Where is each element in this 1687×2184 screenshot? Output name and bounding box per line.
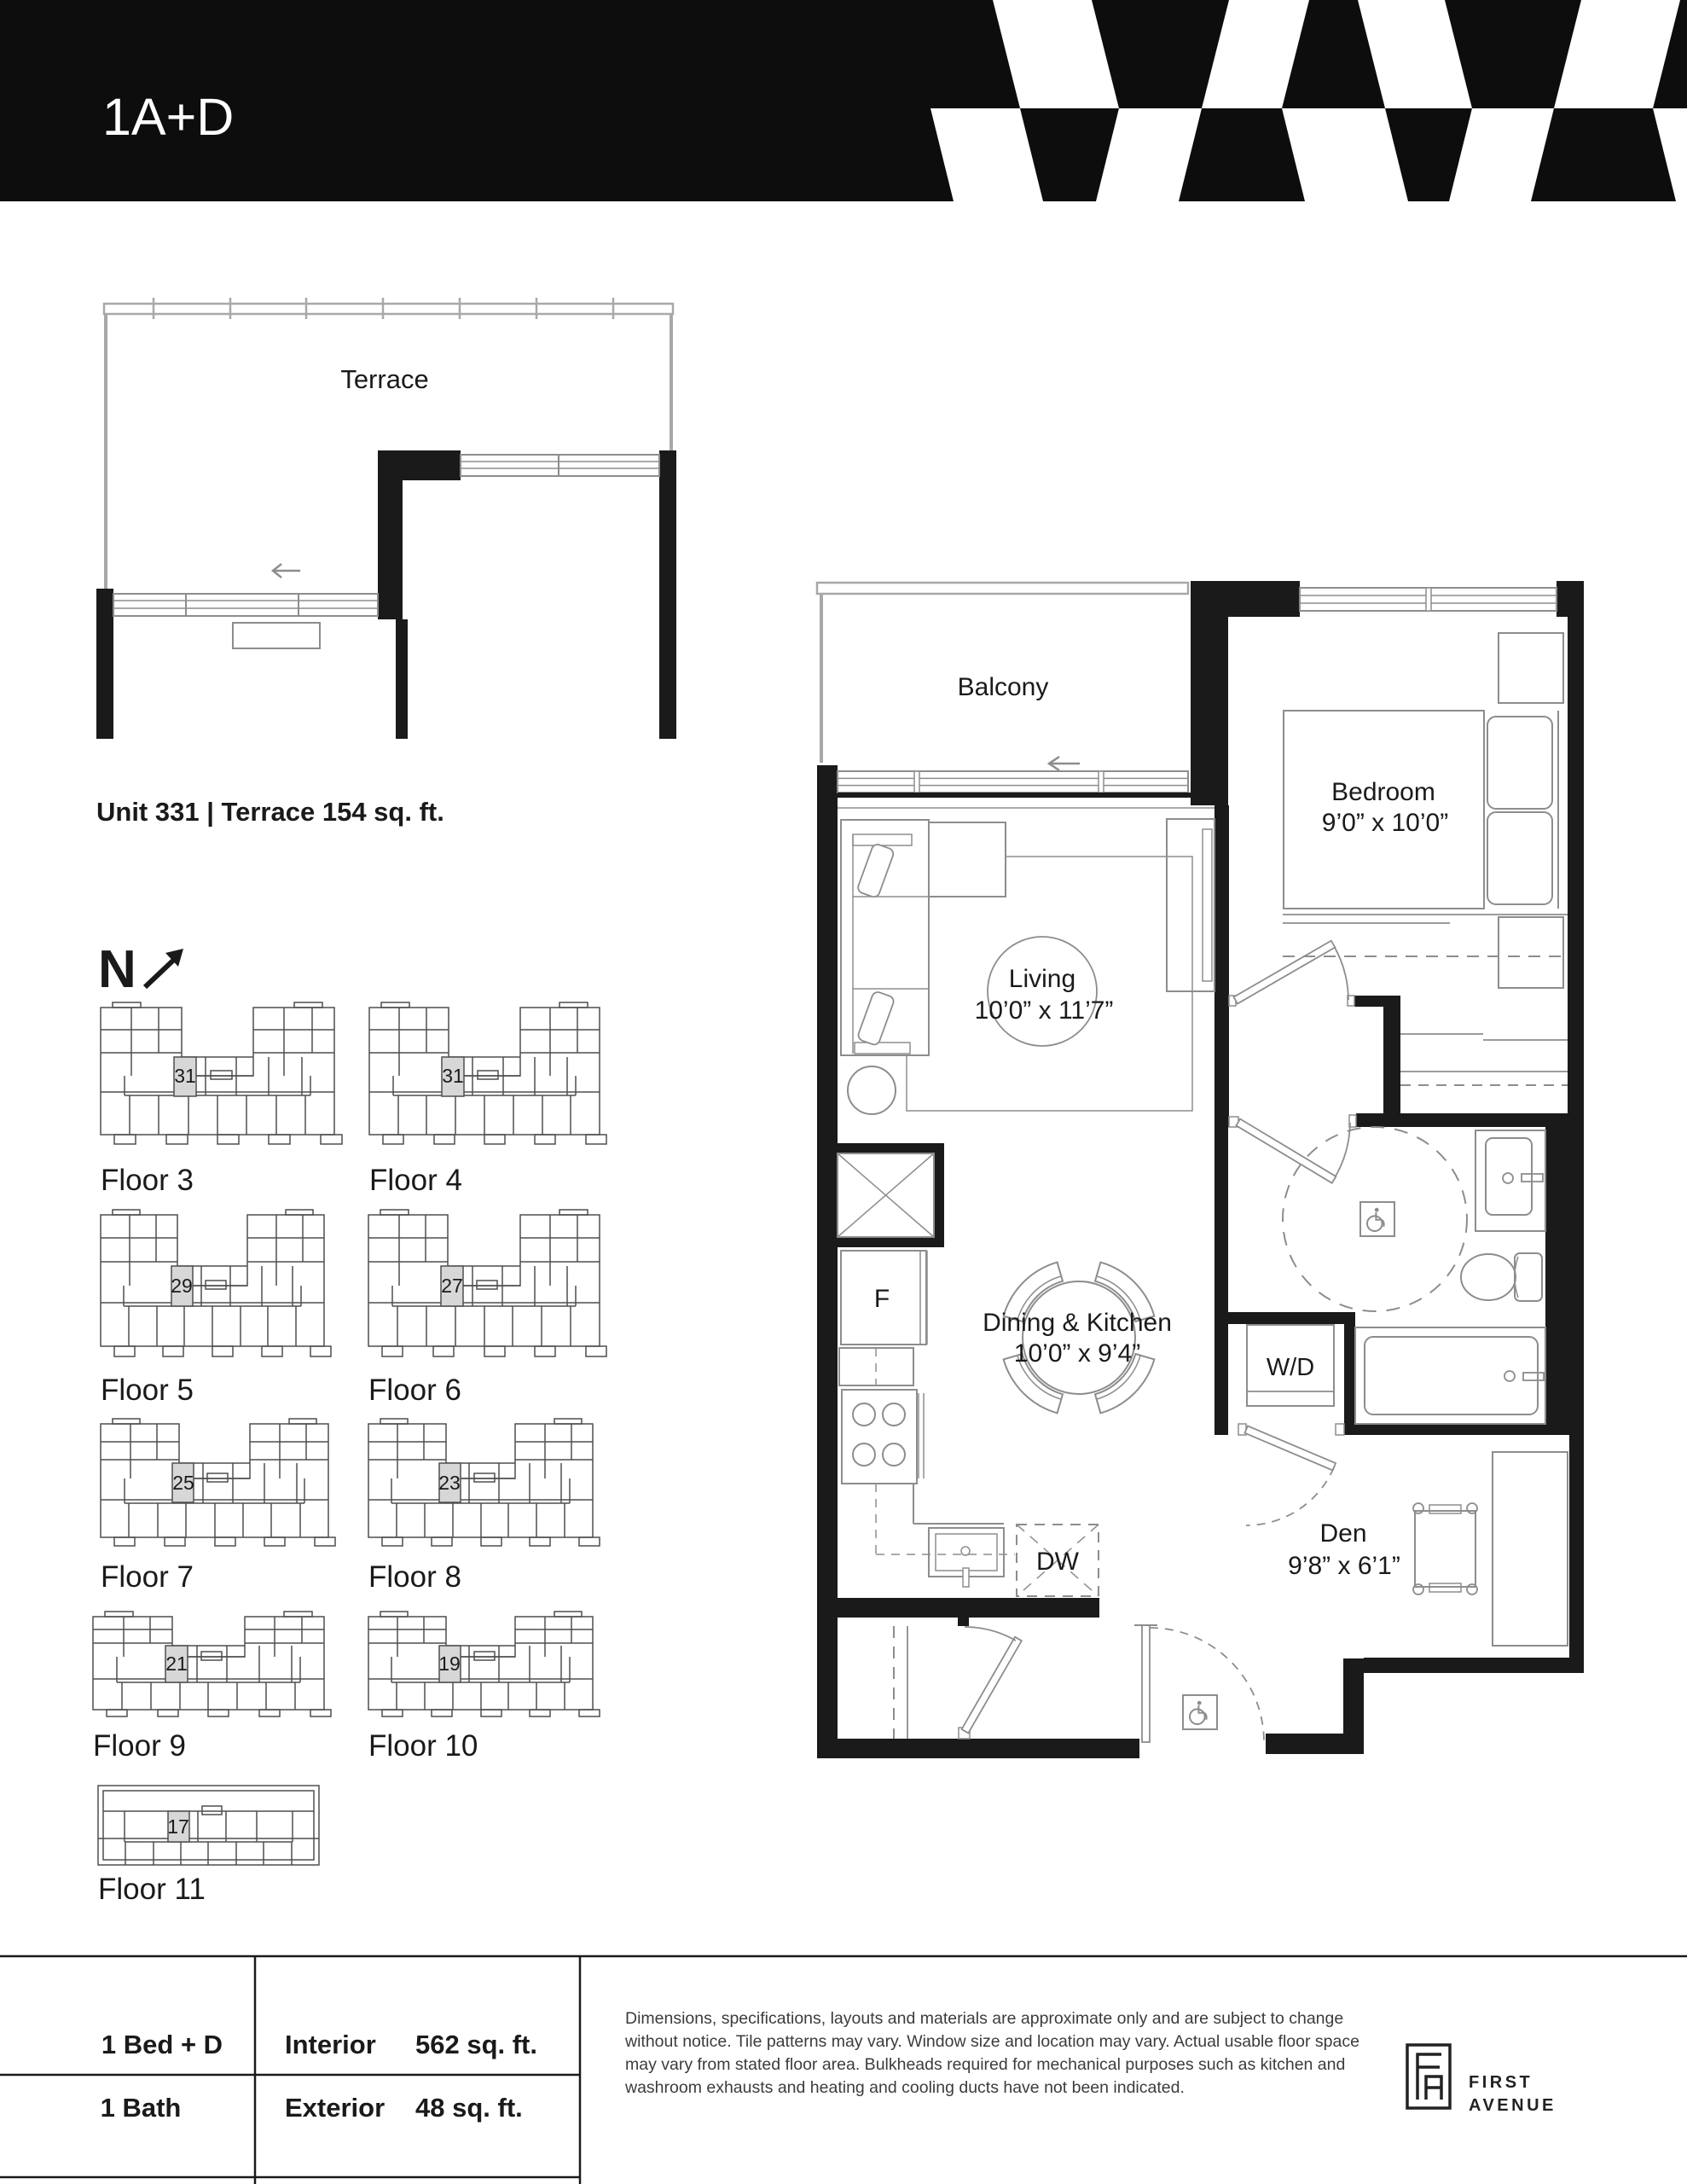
svg-text:AVENUE: AVENUE [1469,2096,1557,2115]
svg-text:Floor 9: Floor 9 [93,1729,186,1763]
svg-text:27: 27 [441,1275,463,1297]
svg-text:23: 23 [438,1472,461,1494]
svg-text:F: F [874,1285,890,1313]
svg-text:Dining & Kitchen: Dining & Kitchen [983,1309,1172,1337]
svg-text:FIRST: FIRST [1469,2073,1533,2092]
svg-text:Floor 4: Floor 4 [369,1164,462,1197]
svg-text:Floor 5: Floor 5 [101,1374,194,1407]
svg-text:Floor 11: Floor 11 [98,1873,206,1906]
svg-text:Bedroom: Bedroom [1331,778,1435,806]
svg-text:washroom exhausts and heating: washroom exhausts and heating and coolin… [624,2078,1185,2097]
svg-text:Interior: Interior [285,2030,376,2059]
svg-text:562 sq. ft.: 562 sq. ft. [415,2030,537,2059]
svg-text:Floor 6: Floor 6 [368,1374,461,1407]
svg-text:Terrace: Terrace [340,364,428,394]
svg-text:9’8” x 6’1”: 9’8” x 6’1” [1288,1552,1400,1580]
svg-text:Living: Living [1009,965,1075,993]
svg-text:Floor 3: Floor 3 [101,1164,194,1197]
svg-text:without notice. Tile patterns: without notice. Tile patterns may vary. … [624,2032,1359,2051]
svg-text:17: 17 [167,1815,189,1838]
svg-text:DW: DW [1036,1548,1080,1576]
svg-text:29: 29 [171,1275,193,1297]
svg-text:may vary from stated floor are: may vary from stated floor area. Bulkhea… [625,2055,1345,2074]
svg-text:10’0” x 11’7”: 10’0” x 11’7” [975,996,1114,1025]
svg-text:1 Bed + D: 1 Bed + D [101,2030,223,2059]
svg-text:Unit 331 | Terrace 154 sq. ft.: Unit 331 | Terrace 154 sq. ft. [96,797,444,827]
svg-text:Den: Den [1319,1519,1366,1548]
svg-text:Exterior: Exterior [285,2093,385,2123]
svg-text:1 Bath: 1 Bath [101,2093,182,2123]
svg-text:21: 21 [165,1653,188,1675]
svg-text:W/D: W/D [1267,1354,1314,1381]
svg-text:Dimensions, specifications, la: Dimensions, specifications, layouts and … [625,2009,1343,2028]
svg-text:N: N [98,940,136,999]
svg-text:25: 25 [172,1472,194,1494]
svg-text:19: 19 [438,1653,461,1675]
svg-text:Floor 8: Floor 8 [368,1560,461,1594]
svg-text:9’0” x 10’0”: 9’0” x 10’0” [1322,809,1448,837]
svg-text:1A+D: 1A+D [102,88,234,146]
svg-text:Balcony: Balcony [958,673,1049,701]
svg-text:48 sq. ft.: 48 sq. ft. [415,2093,523,2123]
svg-text:10’0” x 9’4”: 10’0” x 9’4” [1014,1339,1140,1368]
svg-text:Floor 7: Floor 7 [101,1560,194,1594]
svg-text:31: 31 [442,1065,464,1087]
svg-text:Floor 10: Floor 10 [368,1729,478,1763]
svg-text:31: 31 [174,1065,196,1087]
